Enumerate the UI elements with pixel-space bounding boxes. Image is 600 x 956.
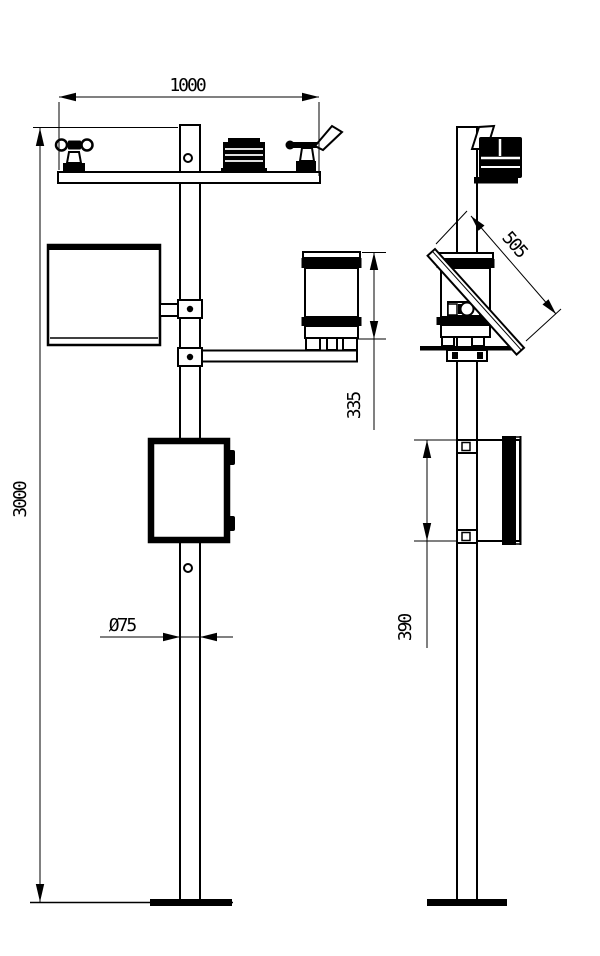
gauge-foot <box>343 338 357 350</box>
gauge-foot <box>442 337 454 346</box>
arm-clamp-bolt <box>187 354 193 360</box>
enclosure-front <box>151 441 235 540</box>
cup-anemometer-icon <box>56 140 93 173</box>
dim-pole-diameter-label: Ø75 <box>109 615 137 636</box>
arrow-up-icon <box>423 440 431 458</box>
arrow-down-icon <box>423 523 431 541</box>
arrow-right-icon <box>302 93 319 101</box>
gauge-foot <box>306 338 320 350</box>
vane-stem <box>300 148 314 161</box>
dim-pole-diameter: Ø75 <box>100 615 233 641</box>
panel-bracket <box>160 300 202 318</box>
hinge-bottom <box>228 516 235 531</box>
wind-vane-icon <box>286 126 343 173</box>
dim-enclosure-height: 390 <box>395 440 458 648</box>
arrow-up-icon <box>36 128 44 146</box>
base-plate-side <box>427 899 507 906</box>
pole-hole-top <box>184 154 192 162</box>
arrow-left-icon <box>200 633 217 641</box>
solar-panel-front <box>48 245 160 345</box>
crossarm-end <box>474 177 518 184</box>
arrow-down-icon <box>36 884 44 902</box>
gauge-foot <box>472 337 484 346</box>
dim-solar-panel-label: 505 <box>498 227 532 262</box>
dim-rain-gauge-label: 335 <box>344 392 365 420</box>
box-door-edge <box>502 436 516 545</box>
technical-drawing: 1000 3000 335 Ø75 505 <box>0 0 600 956</box>
anemometer-stem <box>67 152 81 163</box>
sensor-cluster-side <box>474 137 522 184</box>
dim-crossarm-span-label: 1000 <box>169 75 206 96</box>
front-crossarm <box>58 172 320 183</box>
arm-bar <box>202 351 357 362</box>
hinge-top <box>228 450 235 465</box>
anemometer-hub <box>68 141 81 150</box>
pole-hole-bottom <box>184 564 192 572</box>
side-pole <box>457 127 477 903</box>
panel-clamp-bolt <box>187 306 193 312</box>
gauge-foot <box>327 338 337 350</box>
flange-side <box>420 346 521 361</box>
anemometer-cup-right <box>82 140 93 151</box>
vane-base <box>296 161 316 173</box>
front-view <box>30 125 362 906</box>
arrow-up-icon <box>370 253 378 271</box>
base-plate-front <box>150 899 232 906</box>
rain-gauge-front <box>302 252 362 350</box>
arrow-down-icon <box>370 321 378 339</box>
dim-pole-height-label: 3000 <box>10 481 31 518</box>
radiation-shield-icon <box>221 138 267 173</box>
dim-enclosure-label: 390 <box>395 614 416 642</box>
arrow-right-icon <box>163 633 180 641</box>
anemometer-cup-left <box>56 140 67 151</box>
anemometer-base <box>63 163 85 173</box>
arrow-left-icon <box>59 93 76 101</box>
drawing-sheet: 1000 3000 335 Ø75 505 <box>0 0 600 956</box>
